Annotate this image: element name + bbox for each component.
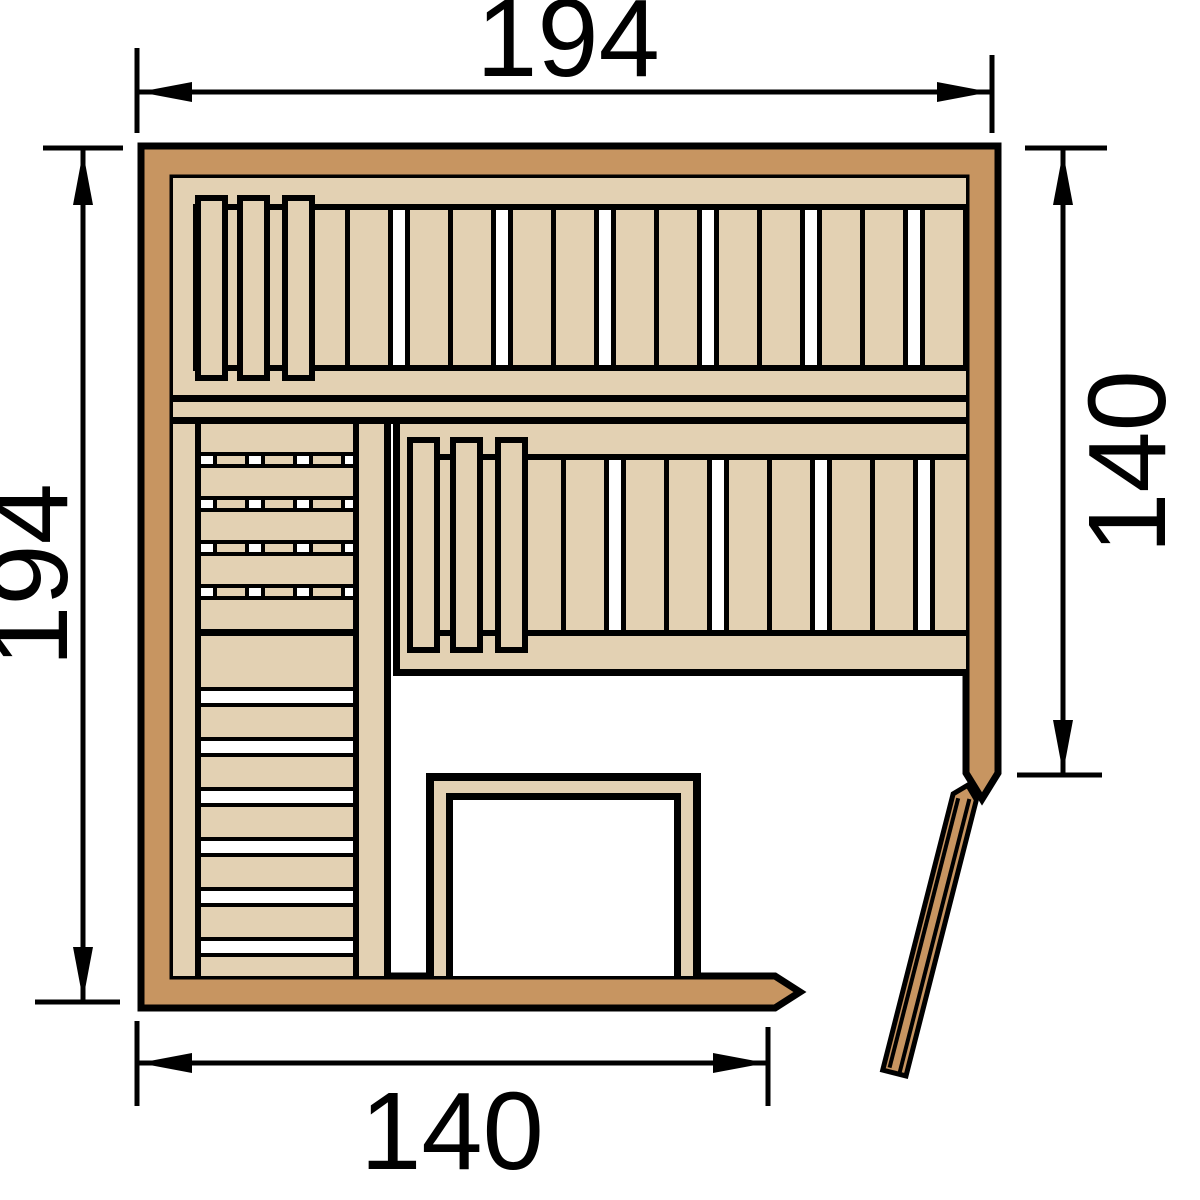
bench-left-ladder-slats xyxy=(201,657,353,976)
dim-label-bottom: 140 xyxy=(302,1077,602,1187)
heater-frame-wood xyxy=(434,781,693,976)
bench-top xyxy=(173,178,966,424)
dim-arrow-right-top xyxy=(1053,152,1073,205)
headrest-slat xyxy=(282,195,315,381)
dim-arrow-left-bottom xyxy=(73,947,93,1000)
heater-frame-outer xyxy=(426,773,701,976)
bench-left-top-edge xyxy=(173,417,391,424)
dim-arrow-right-bottom xyxy=(1053,720,1073,773)
bench-left-middle xyxy=(201,424,353,976)
headrest-slat xyxy=(495,437,528,653)
bench-left-rail-line xyxy=(353,424,359,976)
bench-middle-left-edge xyxy=(393,424,400,676)
bench-middle xyxy=(393,424,966,676)
dim-arrow-top-right xyxy=(937,82,990,102)
dim-arrow-bottom-right xyxy=(713,1053,766,1073)
headrest-slat xyxy=(237,195,270,381)
dim-arrow-bottom-left xyxy=(139,1053,192,1073)
bench-left-right-edge xyxy=(384,417,391,976)
bench-middle-slats xyxy=(409,454,966,636)
door-panel-line xyxy=(890,798,959,1067)
sauna-floorplan-canvas: 194 194 140 140 xyxy=(0,0,1200,1200)
dim-arrow-left-top xyxy=(73,152,93,205)
heater xyxy=(426,773,701,976)
bench-middle-bottom-edge xyxy=(393,669,966,676)
door-panel-line xyxy=(900,799,970,1072)
bench-left-column xyxy=(173,417,391,976)
dim-arrow-top-left xyxy=(139,82,192,102)
duckboard-row xyxy=(201,452,353,468)
headrest-slat xyxy=(195,195,228,381)
heater-frame-inner xyxy=(446,793,681,976)
door-leaf xyxy=(883,782,980,1076)
dim-label-right: 140 xyxy=(1073,342,1183,582)
duckboard-row xyxy=(201,540,353,556)
duckboard-row xyxy=(201,584,353,600)
dim-label-left: 194 xyxy=(0,455,85,695)
headrest-slat xyxy=(407,437,440,653)
bench-left-divider xyxy=(201,629,353,636)
duckboard-row xyxy=(201,496,353,512)
dim-label-top: 194 xyxy=(368,0,768,94)
bench-top-front-edge xyxy=(173,395,966,402)
headrest-slat xyxy=(450,437,483,653)
